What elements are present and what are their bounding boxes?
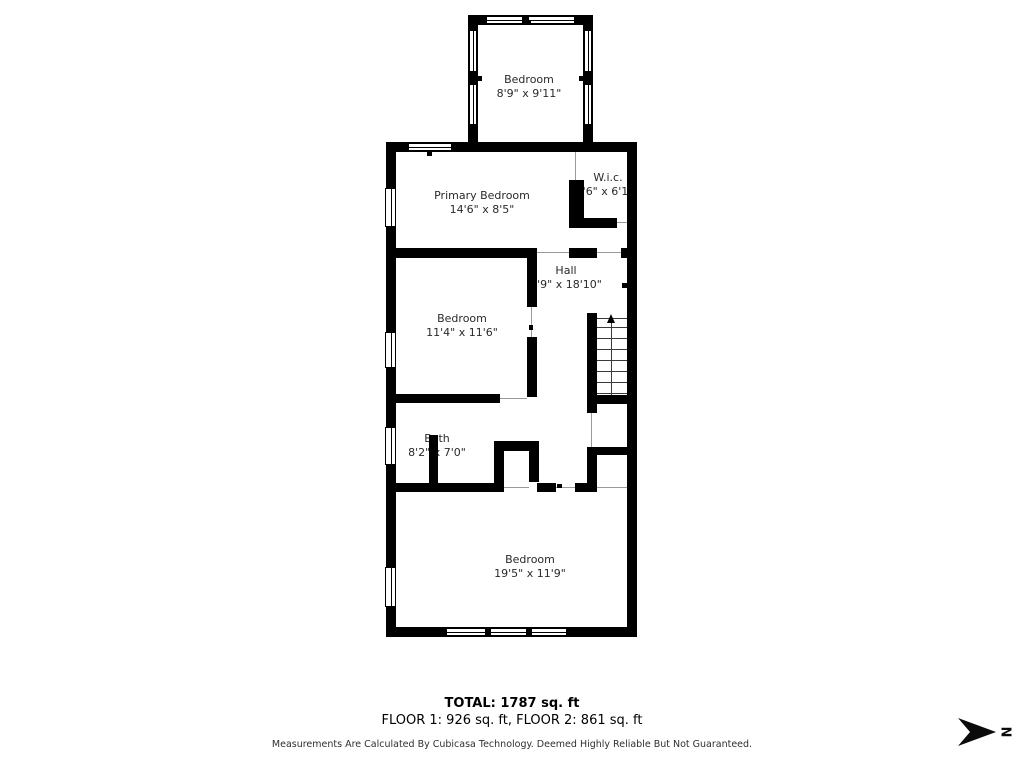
wall-tick xyxy=(579,76,583,81)
wall xyxy=(386,248,537,258)
floor-plan xyxy=(0,0,1024,768)
wall xyxy=(584,218,617,228)
room-name: Primary Bedroom xyxy=(434,189,530,203)
wall-tick xyxy=(557,484,562,488)
wall xyxy=(569,248,597,258)
north-arrow-icon: N xyxy=(948,708,1020,754)
wall-tick xyxy=(427,152,432,156)
room-label-hall: Hall 7'9" x 18'10" xyxy=(530,264,602,292)
wall xyxy=(537,483,556,492)
door-opening xyxy=(500,398,527,399)
door-opening xyxy=(617,222,627,223)
compass-north-label: N xyxy=(998,727,1013,738)
room-dims: '6" x 6'1" xyxy=(583,185,634,199)
room-name: Bedroom xyxy=(494,553,566,567)
stair-tread xyxy=(597,393,627,394)
stair-tread xyxy=(597,327,627,328)
room-dims: 8'9" x 9'11" xyxy=(497,87,562,101)
wall xyxy=(587,447,597,492)
window-mullion xyxy=(526,627,532,637)
stair-tread xyxy=(597,360,627,361)
window xyxy=(469,30,477,72)
window xyxy=(385,188,396,227)
wall xyxy=(386,483,499,492)
door-opening xyxy=(575,152,576,180)
room-dims: 14'6" x 8'5" xyxy=(434,203,530,217)
room-label-bedroom-bottom: Bedroom 19'5" x 11'9" xyxy=(494,553,566,581)
window xyxy=(385,567,396,607)
room-label-primary-bedroom: Primary Bedroom 14'6" x 8'5" xyxy=(434,189,530,217)
wall-tick xyxy=(459,395,465,399)
stair-tread xyxy=(597,382,627,383)
window xyxy=(385,427,396,465)
wall xyxy=(529,441,539,482)
wall xyxy=(527,337,537,397)
room-label-bedroom-middle: Bedroom 11'4" x 11'6" xyxy=(426,312,498,340)
door-opening xyxy=(531,307,532,337)
floor-plan-canvas: Bedroom 8'9" x 9'11" Primary Bedroom 14'… xyxy=(0,0,1024,768)
room-name: W.i.c. xyxy=(583,171,634,185)
wall xyxy=(527,258,537,307)
door-opening xyxy=(591,413,592,447)
stair-up-arrow-icon xyxy=(607,314,615,323)
room-label-wic: W.i.c. '6" x 6'1" xyxy=(583,171,634,199)
door-opening xyxy=(597,487,627,488)
wall xyxy=(587,313,597,404)
window xyxy=(446,628,567,636)
wall xyxy=(569,180,584,228)
window xyxy=(385,332,396,368)
total-area-label: TOTAL: 1787 sq. ft xyxy=(0,696,1024,711)
window-mullion xyxy=(485,627,491,637)
floor-areas-label: FLOOR 1: 926 sq. ft, FLOOR 2: 861 sq. ft xyxy=(0,713,1024,728)
wall xyxy=(621,248,637,258)
door-opening xyxy=(504,487,529,488)
room-dims: 7'9" x 18'10" xyxy=(530,278,602,292)
room-dims: 11'4" x 11'6" xyxy=(426,326,498,340)
wall-tick xyxy=(529,325,533,330)
stair-direction-line xyxy=(611,322,612,396)
wall-tick xyxy=(520,145,526,149)
wall xyxy=(587,395,637,404)
wall-tick xyxy=(478,76,482,81)
window xyxy=(408,143,452,151)
door-opening xyxy=(537,252,569,253)
door-opening xyxy=(597,252,621,253)
window xyxy=(584,84,592,125)
wall xyxy=(587,404,597,413)
wall-tick xyxy=(526,21,531,25)
wall xyxy=(386,394,500,403)
wall xyxy=(627,142,637,637)
stair-tread xyxy=(597,371,627,372)
room-label-bedroom-top: Bedroom 8'9" x 9'11" xyxy=(497,73,562,101)
stair-tread xyxy=(597,349,627,350)
wall-tick xyxy=(390,268,395,273)
room-name: Bedroom xyxy=(426,312,498,326)
window xyxy=(469,84,477,125)
stair-tread xyxy=(597,338,627,339)
room-name: Bedroom xyxy=(497,73,562,87)
room-dims: 19'5" x 11'9" xyxy=(494,567,566,581)
room-name: Hall xyxy=(530,264,602,278)
window xyxy=(584,30,592,72)
wall-tick xyxy=(622,283,627,288)
compass: N xyxy=(948,708,1020,754)
disclaimer-text: Measurements Are Calculated By Cubicasa … xyxy=(0,739,1024,750)
